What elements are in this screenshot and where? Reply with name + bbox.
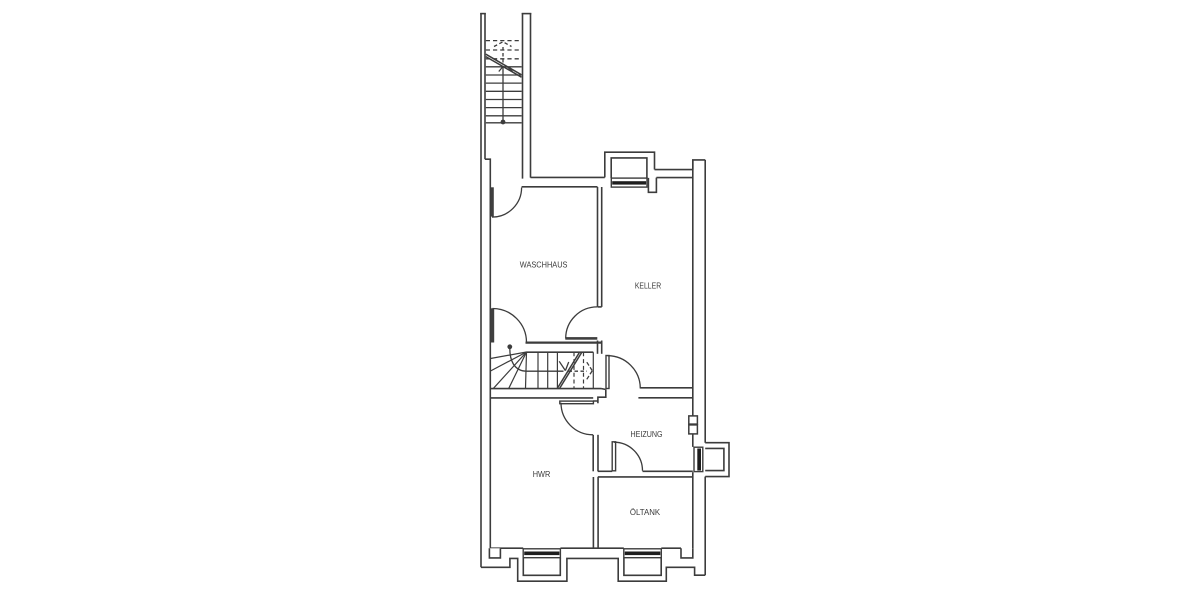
svg-text:ÖLTANK: ÖLTANK xyxy=(630,507,661,517)
svg-text:HEIZUNG: HEIZUNG xyxy=(630,429,662,439)
svg-text:KELLER: KELLER xyxy=(635,281,661,291)
svg-text:HWR: HWR xyxy=(533,469,551,479)
svg-text:WASCHHAUS: WASCHHAUS xyxy=(520,259,568,269)
